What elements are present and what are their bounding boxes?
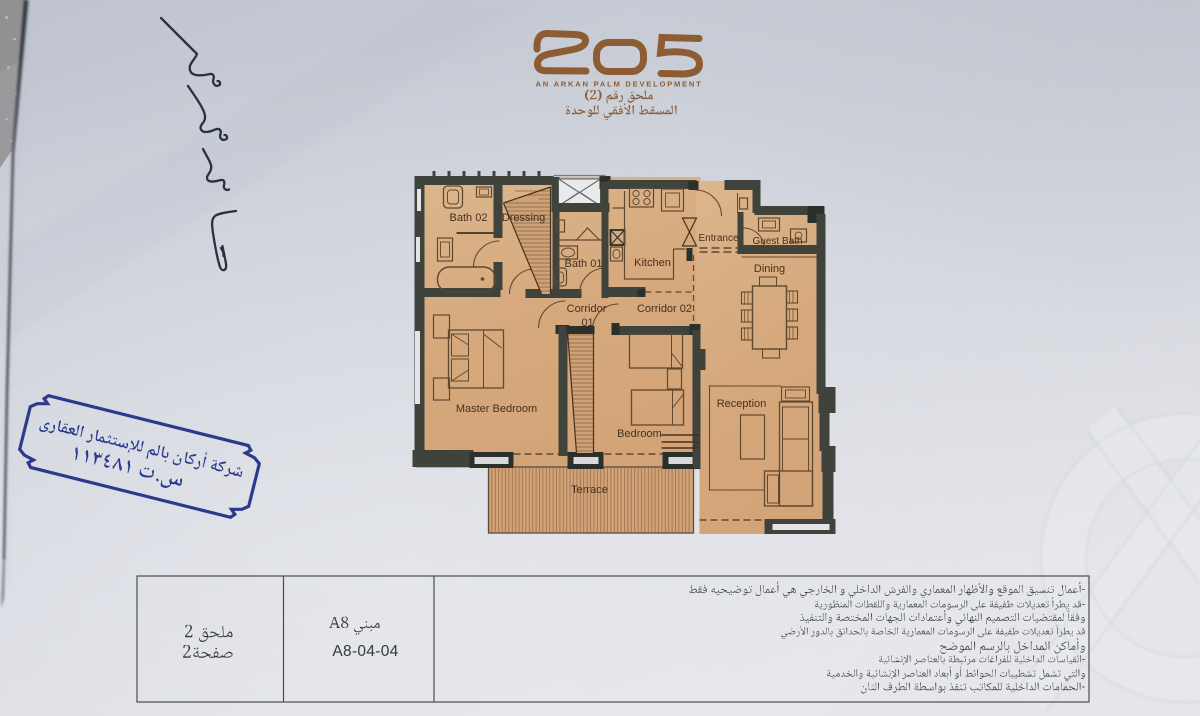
svg-text:Dressing: Dressing <box>502 212 545 224</box>
svg-text:Terrace: Terrace <box>571 484 608 496</box>
svg-text:01: 01 <box>581 317 593 329</box>
svg-text:Bath 01: Bath 01 <box>565 258 603 270</box>
svg-text:Bedroom: Bedroom <box>617 428 662 440</box>
svg-text:Corridor 02: Corridor 02 <box>637 303 692 315</box>
svg-text:Corridor: Corridor <box>567 303 607 315</box>
svg-text:A8-04-04: A8-04-04 <box>332 643 398 660</box>
svg-text:Reception: Reception <box>717 398 767 410</box>
svg-text:Master Bedroom: Master Bedroom <box>456 403 537 415</box>
svg-text:Entrance: Entrance <box>698 233 738 244</box>
svg-text:Bath 02: Bath 02 <box>450 212 488 224</box>
svg-text:AN ARKAN PALM DEVELOPMENT: AN ARKAN PALM DEVELOPMENT <box>536 80 703 89</box>
svg-text:Dining: Dining <box>754 263 785 275</box>
svg-text:Guest Bath: Guest Bath <box>752 236 802 247</box>
svg-text:Kitchen: Kitchen <box>634 257 671 269</box>
